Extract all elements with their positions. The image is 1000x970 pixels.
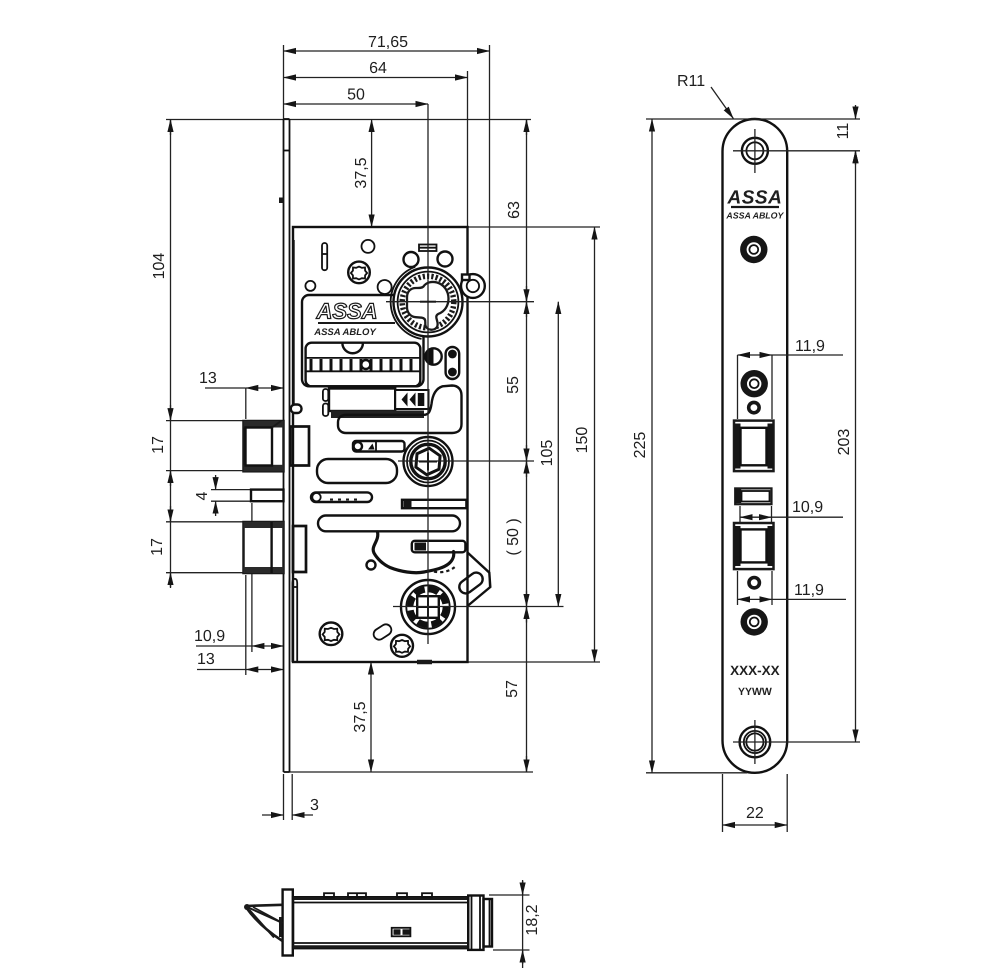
svg-text:( 50 ): ( 50 ) bbox=[505, 518, 522, 555]
svg-text:104: 104 bbox=[151, 253, 168, 280]
svg-text:22: 22 bbox=[746, 805, 764, 822]
svg-text:10,9: 10,9 bbox=[792, 499, 823, 516]
svg-text:10,9: 10,9 bbox=[194, 628, 225, 645]
svg-text:ASSA: ASSA bbox=[315, 299, 377, 324]
svg-text:71,65: 71,65 bbox=[368, 34, 408, 51]
svg-text:57: 57 bbox=[504, 680, 521, 698]
svg-text:11,9: 11,9 bbox=[794, 582, 824, 599]
svg-text:13: 13 bbox=[197, 651, 215, 668]
svg-text:150: 150 bbox=[574, 427, 591, 454]
svg-text:37,5: 37,5 bbox=[352, 701, 369, 732]
svg-text:225: 225 bbox=[632, 432, 649, 459]
svg-text:YYWW: YYWW bbox=[738, 686, 772, 698]
svg-text:37,5: 37,5 bbox=[353, 157, 370, 188]
svg-text:203: 203 bbox=[836, 429, 853, 456]
svg-text:11: 11 bbox=[835, 123, 852, 140]
svg-text:ASSA ABLOY: ASSA ABLOY bbox=[725, 211, 784, 221]
svg-text:11,9: 11,9 bbox=[795, 338, 825, 355]
svg-text:17: 17 bbox=[150, 436, 167, 454]
svg-text:XXX-XX: XXX-XX bbox=[730, 663, 780, 678]
svg-text:ASSA ABLOY: ASSA ABLOY bbox=[313, 327, 377, 338]
svg-text:3: 3 bbox=[310, 797, 319, 814]
svg-text:55: 55 bbox=[505, 376, 522, 394]
svg-text:ASSA: ASSA bbox=[727, 188, 783, 209]
svg-text:17: 17 bbox=[149, 538, 166, 556]
svg-text:18,2: 18,2 bbox=[524, 904, 541, 935]
svg-text:63: 63 bbox=[506, 201, 523, 219]
svg-text:105: 105 bbox=[539, 440, 556, 467]
svg-text:64: 64 bbox=[369, 60, 387, 77]
svg-text:4: 4 bbox=[194, 491, 211, 500]
svg-text:R11: R11 bbox=[677, 73, 705, 90]
svg-text:50: 50 bbox=[347, 87, 365, 104]
svg-text:13: 13 bbox=[199, 370, 217, 387]
